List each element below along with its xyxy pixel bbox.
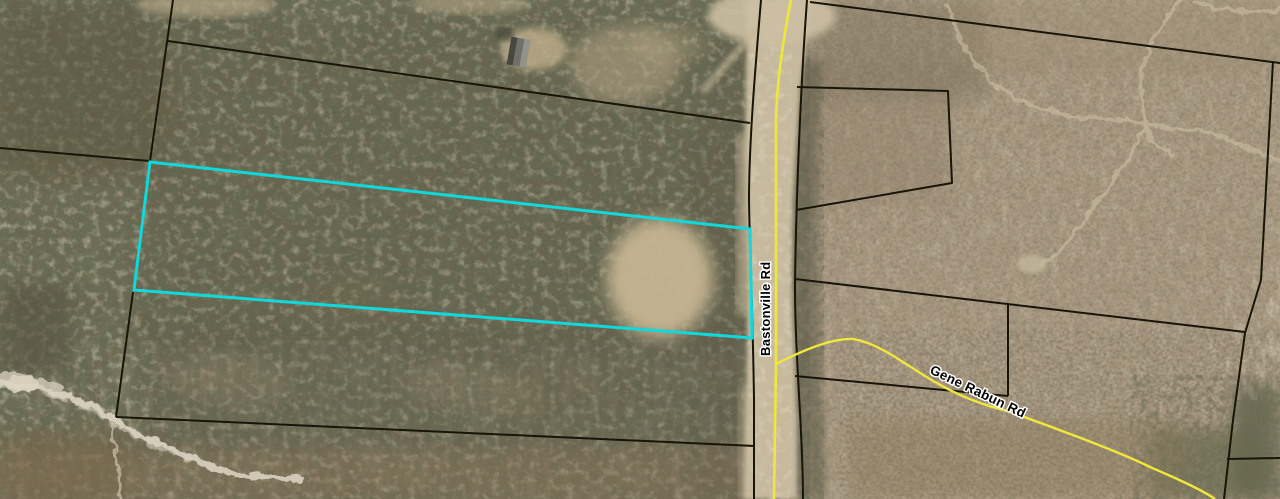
svg-text:Bastonville Rd: Bastonville Rd bbox=[758, 262, 773, 357]
